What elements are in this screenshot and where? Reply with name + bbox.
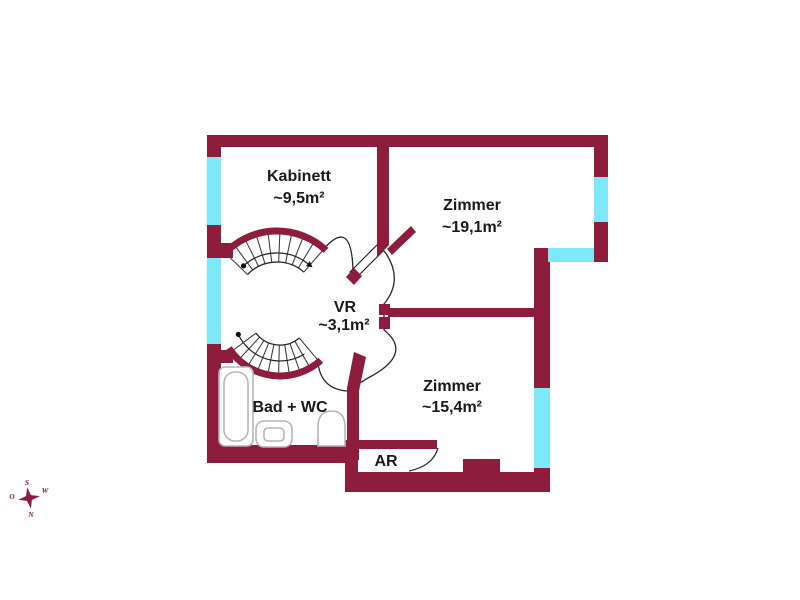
wall-zimmer-divider	[388, 308, 534, 317]
room-label-zimmer2: Zimmer	[423, 378, 481, 395]
floor-plan-page: Kabinett ~9,5m² Zimmer ~19,1m² VR ~3,1m²…	[0, 0, 800, 600]
wall-stair-stub-upper	[221, 243, 233, 258]
wall-diagonal-stub	[387, 226, 416, 255]
window-left-lower	[207, 258, 221, 344]
room-label-kabinett: Kabinett	[267, 168, 332, 185]
window-right-lower	[534, 388, 550, 468]
room-area-kabinett: ~9,5m²	[273, 190, 324, 207]
wall-divider-jamb-bottom	[379, 317, 390, 329]
stair-walk-start-dot	[236, 332, 241, 337]
bathtub-basin	[224, 372, 248, 441]
compass-east: O	[9, 492, 15, 501]
wall-divider-jamb-top	[379, 304, 390, 315]
stair-walk-start-dot	[241, 263, 246, 268]
wall-bottom-bump	[463, 459, 500, 473]
compass-star	[18, 487, 40, 509]
wall-kabinett-divider	[377, 147, 389, 258]
room-label-ar: AR	[374, 453, 398, 470]
window-right-upper	[594, 177, 608, 222]
room-area-vr: ~3,1m²	[318, 317, 369, 334]
compass-rose: S W N O	[9, 478, 49, 519]
room-label-bad-wc: Bad + WC	[252, 399, 328, 416]
wall-bottom	[345, 472, 550, 492]
room-label-vr: VR	[334, 299, 357, 316]
ar-door-swing-arc	[409, 448, 438, 471]
toilet	[318, 411, 345, 446]
wall-top	[207, 135, 608, 147]
room-area-zimmer1: ~19,1m²	[442, 219, 502, 236]
compass-north: N	[27, 510, 34, 519]
window-left-upper	[207, 157, 221, 225]
room-label-zimmer1: Zimmer	[443, 197, 501, 214]
compass-south: S	[25, 478, 29, 487]
wall-right-inner	[534, 248, 550, 392]
sink-basin	[264, 428, 284, 441]
floor-plan: Kabinett ~9,5m² Zimmer ~19,1m² VR ~3,1m²…	[0, 0, 800, 600]
compass-west: W	[42, 486, 50, 495]
wall-stair-stub-lower	[221, 350, 233, 363]
room-area-zimmer2: ~15,4m²	[422, 399, 482, 416]
window-right-step	[548, 248, 594, 262]
